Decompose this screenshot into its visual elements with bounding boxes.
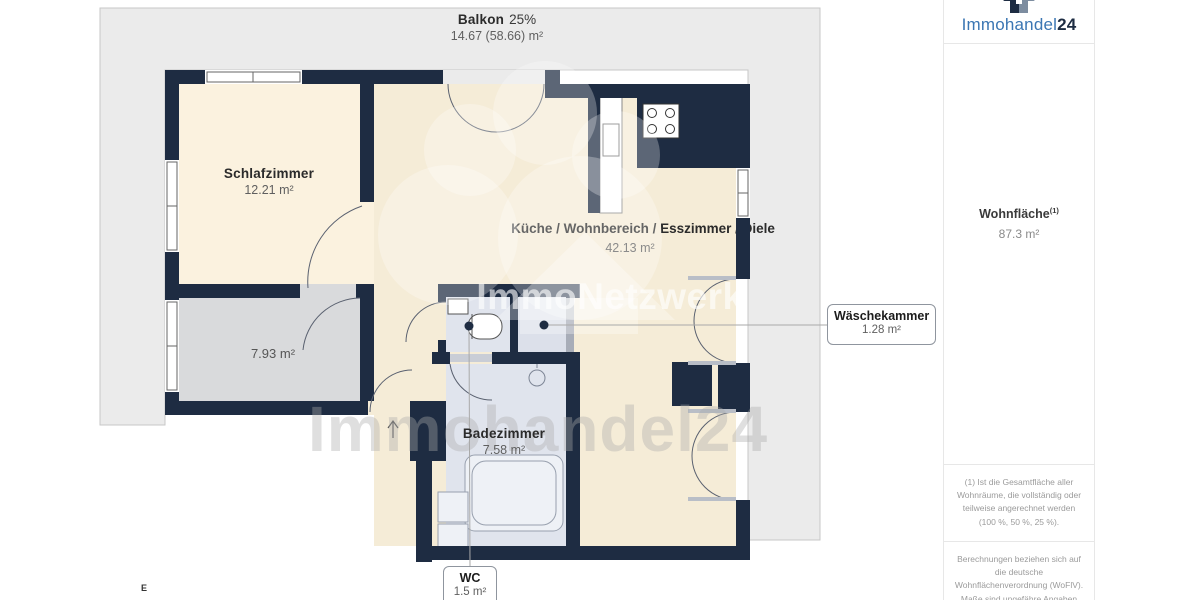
window-icon bbox=[165, 300, 179, 392]
leader-dot bbox=[465, 322, 474, 331]
living-area-label: Wohnfläche(1) bbox=[944, 206, 1094, 221]
window-icon bbox=[165, 160, 179, 252]
logo-text-suffix: 24 bbox=[1057, 15, 1076, 34]
logo-house-icon bbox=[1002, 0, 1036, 13]
logo-section: Immohandel24 bbox=[944, 0, 1094, 44]
logo-text: Immohandel24 bbox=[944, 15, 1094, 35]
waeschekammer-area: 1.28 m² bbox=[834, 324, 929, 336]
washer-icon bbox=[438, 492, 468, 522]
living-area-value: 87.3 m² bbox=[944, 227, 1094, 241]
living-area-footnote-ref: (1) bbox=[1050, 206, 1059, 215]
window-icon bbox=[736, 168, 750, 218]
living-area-section: Wohnfläche(1) 87.3 m² bbox=[944, 44, 1094, 465]
waeschekammer-name: Wäschekammer bbox=[834, 309, 929, 323]
floorplan-page: Küche / Wohnbereich / Esszimmer / Diele … bbox=[0, 0, 1200, 600]
window-icon bbox=[205, 70, 302, 84]
info-sidebar: Immohandel24 Wohnfläche(1) 87.3 m² (1) I… bbox=[943, 0, 1095, 600]
leader-dot bbox=[540, 321, 549, 330]
wc-area: 1.5 m² bbox=[450, 586, 490, 598]
footnote-2: Berechnungen beziehen sich auf die deuts… bbox=[944, 542, 1094, 600]
floor-marker: E bbox=[141, 583, 147, 593]
bathtub-icon bbox=[465, 455, 563, 531]
callout-wc: WC 1.5 m² bbox=[443, 566, 497, 600]
footnote-1: (1) Ist die Gesamtfläche aller Wohnräume… bbox=[944, 465, 1094, 542]
callout-waeschekammer: Wäschekammer 1.28 m² bbox=[827, 304, 936, 345]
living-area-title: Wohnfläche bbox=[979, 207, 1050, 221]
logo-text-primary: Immohandel bbox=[962, 15, 1058, 34]
floorplan-drawing: Küche / Wohnbereich / Esszimmer / Diele … bbox=[0, 0, 940, 600]
wc-name: WC bbox=[450, 571, 490, 585]
